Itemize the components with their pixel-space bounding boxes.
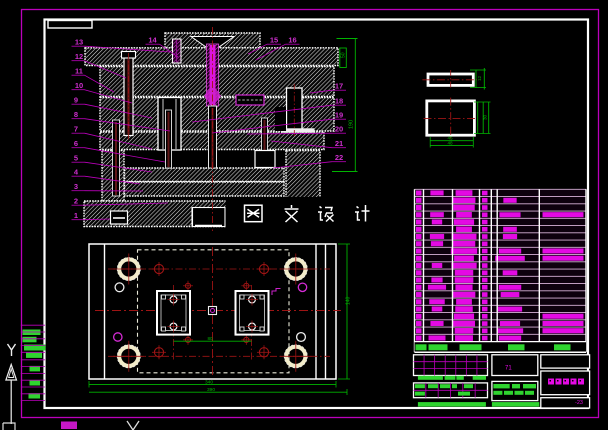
svg-text:11: 11 bbox=[75, 67, 83, 76]
svg-text:14: 14 bbox=[148, 36, 157, 45]
svg-text:9: 9 bbox=[74, 96, 78, 105]
svg-text:140: 140 bbox=[346, 296, 352, 305]
svg-text:19: 19 bbox=[335, 111, 343, 120]
svg-text:16: 16 bbox=[288, 36, 296, 45]
svg-text:8: 8 bbox=[74, 110, 78, 119]
svg-text:71: 71 bbox=[505, 366, 512, 372]
svg-text:7: 7 bbox=[74, 125, 78, 134]
svg-text:13: 13 bbox=[75, 38, 83, 47]
svg-text:50: 50 bbox=[341, 52, 347, 58]
svg-text:17: 17 bbox=[335, 82, 343, 91]
svg-text:390: 390 bbox=[207, 387, 215, 393]
svg-text:18: 18 bbox=[335, 97, 343, 106]
svg-text:-23: -23 bbox=[575, 400, 583, 406]
svg-text:10: 10 bbox=[75, 81, 83, 90]
svg-text:5: 5 bbox=[74, 154, 78, 163]
svg-text:190: 190 bbox=[349, 120, 355, 129]
svg-text:48: 48 bbox=[447, 140, 453, 145]
svg-text:21: 21 bbox=[335, 139, 343, 148]
svg-text:2: 2 bbox=[74, 197, 78, 206]
svg-text:15: 15 bbox=[270, 36, 278, 45]
svg-text:20: 20 bbox=[335, 125, 343, 134]
svg-text:30: 30 bbox=[483, 114, 488, 120]
svg-text:12: 12 bbox=[75, 52, 83, 61]
svg-text:22: 22 bbox=[335, 153, 343, 162]
svg-text:3: 3 bbox=[74, 182, 78, 191]
svg-text:12: 12 bbox=[477, 75, 482, 81]
svg-text:1: 1 bbox=[74, 211, 78, 220]
svg-text:340: 340 bbox=[205, 380, 213, 386]
svg-text:6: 6 bbox=[74, 139, 78, 148]
svg-text:80: 80 bbox=[207, 336, 213, 341]
